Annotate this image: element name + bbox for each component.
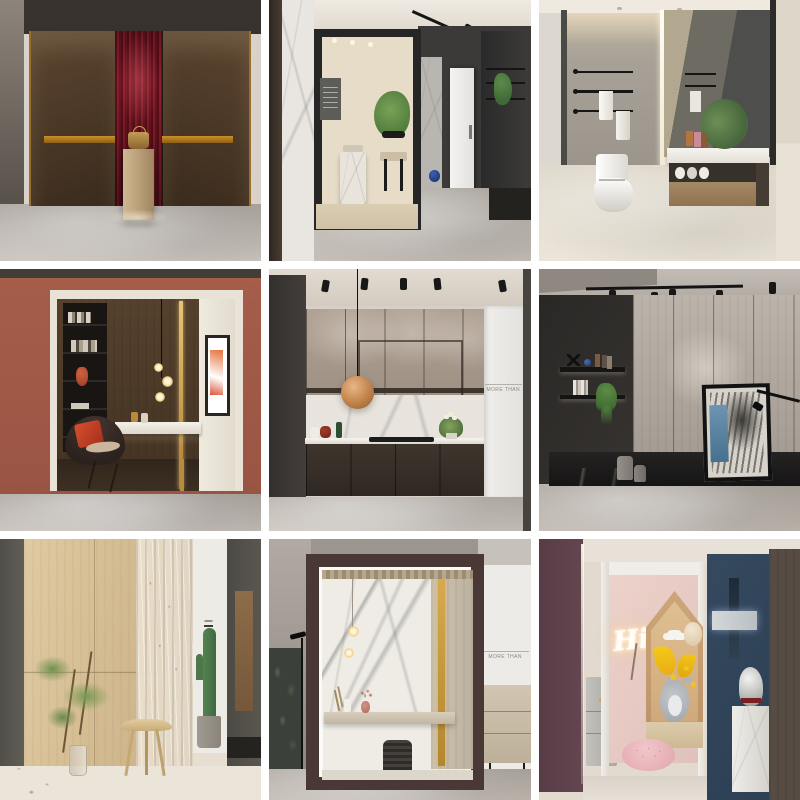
cactus-pot — [197, 716, 221, 747]
pendant-stem — [357, 269, 359, 376]
white-jug — [310, 427, 319, 437]
desk-objects — [131, 412, 139, 422]
pedestal-veins — [732, 706, 769, 792]
floor-glow — [99, 209, 177, 230]
gallery-tile-kitchen[interactable]: MORE THAN — [269, 269, 530, 530]
floating-shelf-upper — [560, 367, 625, 372]
booth-brass-strip — [438, 573, 445, 766]
woven-stool — [383, 740, 412, 774]
cabinet-inner-frame — [358, 340, 463, 397]
towel-white-2 — [616, 111, 630, 140]
gallery-tile-japandi-corner[interactable] — [0, 539, 261, 800]
right-floor-plinth — [227, 737, 261, 758]
right-dark-edge — [523, 269, 531, 530]
floor-lamp-pole — [301, 638, 304, 779]
counter-plants — [701, 99, 748, 149]
botanical-art-panel — [269, 648, 303, 768]
rolled-towels — [675, 167, 685, 179]
cylinder-stool-1 — [617, 456, 633, 480]
shelf-line — [486, 68, 525, 70]
vanity-counter — [667, 148, 769, 164]
marble-cross-slab — [712, 611, 756, 631]
brass-band-left — [44, 136, 115, 143]
decor-books — [573, 380, 589, 394]
small-decor — [71, 403, 89, 410]
booth-ceiling-slats — [322, 570, 474, 579]
plinth-step — [489, 188, 531, 219]
booth-console — [324, 712, 455, 724]
gallery-tile-dark-display-wall[interactable] — [539, 269, 800, 530]
toilet-bowl — [594, 178, 633, 212]
base-cabinet-seams — [306, 444, 484, 496]
gallery-tile-bathroom[interactable] — [539, 0, 800, 261]
side-room-strip — [0, 0, 24, 214]
vignette-chair-back — [382, 131, 406, 139]
mirror-reflection-towel — [690, 91, 700, 112]
copper-pendant — [341, 376, 374, 409]
left-dark-wall — [269, 275, 306, 500]
plush-cat-ears — [664, 676, 674, 685]
coat-hook — [204, 625, 213, 627]
booth-marble-bold-vein — [322, 570, 432, 714]
hanging-plant-trails — [601, 405, 611, 429]
cylinder-stool-2 — [634, 465, 646, 482]
stool-leg-mid — [145, 731, 148, 775]
floor-texture — [539, 486, 800, 530]
vignette-floor — [316, 204, 418, 229]
corridor-marble-panel — [418, 57, 442, 188]
ceiling-strip — [0, 269, 261, 278]
towel-bar-1 — [575, 71, 632, 74]
vignette-menu-board — [320, 78, 341, 120]
spotlight — [360, 278, 368, 291]
decor-vases — [595, 354, 600, 367]
pendant-bulb-1 — [348, 626, 359, 637]
red-vase — [76, 367, 88, 385]
console-pink-vase — [361, 701, 370, 714]
booth-inner-floor — [322, 770, 474, 780]
floor-texture — [0, 494, 261, 531]
upper-wall — [0, 0, 261, 34]
glass-vase — [69, 745, 87, 776]
brand-panel-text: MORE THAN — [485, 384, 522, 393]
green-bottle — [336, 422, 342, 438]
spotlight — [400, 278, 407, 290]
spotlight — [769, 282, 776, 294]
marble-pillar — [282, 0, 313, 261]
counter-bottles — [686, 131, 692, 147]
art-orange-accent — [210, 350, 223, 394]
mirror-light-strip — [660, 10, 663, 167]
gallery-tile-showroom-corridor[interactable] — [269, 0, 530, 261]
trailing-plant — [494, 73, 512, 104]
neon-sign: Hi — [612, 623, 651, 658]
vanity-drawers — [669, 182, 755, 207]
white-frame-left — [601, 562, 609, 776]
floating-desk — [115, 422, 201, 434]
bust-red-band — [741, 698, 761, 703]
gallery-tile-terracotta-study[interactable] — [0, 269, 261, 530]
brand-wall-text: MORE THAN — [481, 651, 529, 660]
gallery-tile-marble-booth[interactable]: MORE THAN — [269, 539, 530, 800]
door-handle — [469, 125, 472, 138]
display-shelf-unit — [481, 31, 531, 209]
right-reflected-room — [776, 0, 800, 261]
maroon-panel — [539, 539, 583, 793]
brass-band-right — [162, 136, 233, 143]
maroon-panel-light-edge — [581, 544, 584, 784]
vignette-pedestal-table — [340, 152, 366, 204]
vanity-side-panel — [756, 163, 769, 206]
cactus-arm — [196, 654, 203, 680]
pouf-tuft-dots — [630, 745, 667, 763]
slat-wall-grain — [769, 549, 800, 800]
gold-floor-strip — [180, 459, 184, 492]
vignette-tea-set — [343, 145, 364, 152]
mirror-reflection-bar — [685, 73, 716, 75]
blue-sphere — [429, 170, 441, 182]
hanging-wood-board — [235, 591, 253, 711]
branch-foliage-1 — [34, 656, 71, 682]
red-kettle — [320, 426, 330, 438]
hob — [369, 437, 434, 442]
spotlight — [433, 278, 441, 291]
towel-white-1 — [599, 91, 613, 120]
wooden-stool-seat — [120, 719, 172, 731]
white-frame-top — [601, 562, 711, 575]
bookcase-shelves — [63, 324, 107, 326]
spotlight — [321, 279, 330, 292]
books-row-2 — [71, 340, 97, 352]
oak-cabinet — [484, 685, 531, 763]
floor — [583, 776, 707, 800]
console-flowers — [357, 688, 375, 701]
branch-foliage-3 — [47, 706, 78, 730]
books-row — [68, 312, 92, 322]
console-white-bottle — [344, 699, 351, 712]
brand-panel — [484, 306, 523, 499]
plant-flowers — [444, 415, 448, 419]
gallery-tile-entry-red-niche[interactable] — [0, 0, 261, 261]
decor-x-object — [567, 354, 580, 366]
cabinet-drawer-seams — [484, 711, 531, 712]
gallery-tile-kids-room[interactable]: Hi — [539, 539, 800, 800]
left-wall — [539, 13, 563, 170]
wood-panel-right — [162, 31, 251, 206]
plant-pot — [446, 433, 458, 440]
curtain-pattern-specks — [141, 560, 188, 717]
cloud-decal — [667, 630, 683, 639]
artwork-blue-patch — [709, 405, 729, 463]
right-upper-grey — [478, 539, 530, 565]
balloon-lamp — [684, 622, 702, 646]
wood-panel-left — [29, 31, 118, 206]
dark-wood-edge — [269, 0, 282, 261]
toilet-seat-line — [599, 179, 625, 181]
cactus-body — [203, 628, 216, 722]
stone-wall-cove-glow — [567, 13, 661, 44]
photo-gallery-grid: MORE THAN — [0, 0, 800, 800]
bag-handle — [133, 126, 145, 135]
vignette-chair-legs — [384, 159, 387, 190]
floor-texture — [269, 497, 522, 531]
